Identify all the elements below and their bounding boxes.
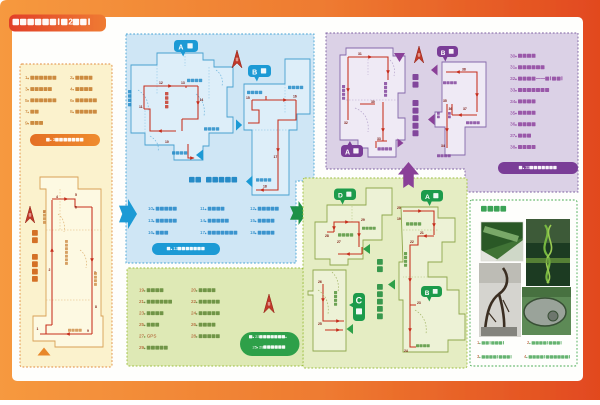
svg-text:34: 34 — [510, 99, 516, 105]
svg-text:18: 18 — [250, 230, 256, 235]
svg-text:19: 19 — [397, 217, 401, 221]
svg-text:24: 24 — [404, 349, 408, 353]
svg-text:5: 5 — [75, 193, 77, 197]
svg-text:19: 19 — [139, 288, 145, 293]
svg-text:1: 1 — [25, 75, 28, 80]
svg-text:B: B — [441, 50, 446, 57]
svg-text:4: 4 — [56, 195, 58, 199]
svg-text:11: 11 — [200, 206, 205, 211]
svg-text:B: B — [425, 290, 430, 297]
svg-text:10: 10 — [165, 140, 169, 144]
svg-text:2: 2 — [70, 75, 73, 80]
svg-text:25: 25 — [139, 322, 145, 327]
svg-text:20: 20 — [191, 288, 197, 293]
svg-text:25: 25 — [318, 322, 322, 326]
svg-text:8: 8 — [95, 305, 97, 309]
svg-text:29: 29 — [361, 218, 365, 222]
svg-text:15: 15 — [250, 218, 256, 223]
svg-text:38: 38 — [462, 68, 466, 72]
svg-text:26: 26 — [191, 322, 197, 327]
svg-text:24: 24 — [191, 311, 197, 316]
svg-text:22: 22 — [410, 240, 414, 244]
svg-text:30: 30 — [510, 53, 516, 59]
svg-text:C: C — [356, 296, 363, 306]
svg-text:7: 7 — [25, 109, 28, 114]
svg-text:14: 14 — [200, 98, 204, 102]
svg-text:4: 4 — [70, 87, 73, 92]
svg-text:28: 28 — [325, 234, 329, 238]
svg-text:8: 8 — [70, 109, 73, 114]
svg-text:17: 17 — [274, 155, 278, 159]
svg-text:35: 35 — [443, 99, 447, 103]
svg-text:16: 16 — [148, 230, 154, 235]
svg-text:26: 26 — [318, 280, 322, 284]
svg-text:14: 14 — [200, 218, 206, 223]
svg-text:31: 31 — [358, 52, 362, 56]
svg-text:9: 9 — [25, 120, 28, 125]
svg-text:6: 6 — [70, 98, 73, 103]
svg-text:12: 12 — [159, 81, 163, 85]
svg-text:27: 27 — [337, 240, 341, 244]
svg-text:GPS: GPS — [147, 334, 157, 339]
svg-text:34: 34 — [441, 144, 445, 148]
svg-text:11: 11 — [139, 105, 143, 109]
svg-text:20: 20 — [397, 206, 401, 210]
svg-text:2: 2 — [49, 268, 51, 272]
svg-text:36: 36 — [510, 122, 516, 128]
svg-text:32: 32 — [344, 121, 348, 125]
svg-text:37: 37 — [510, 133, 516, 139]
svg-text:22: 22 — [191, 299, 197, 304]
svg-text:33: 33 — [377, 137, 381, 141]
svg-text:17: 17 — [200, 230, 206, 235]
svg-text:2: 2 — [68, 17, 73, 26]
svg-text:D: D — [338, 193, 343, 200]
svg-text:B: B — [252, 70, 257, 77]
svg-text:31: 31 — [510, 65, 516, 71]
svg-text:35: 35 — [510, 110, 516, 116]
svg-text:38: 38 — [510, 145, 516, 151]
svg-text:16: 16 — [293, 95, 297, 99]
svg-text:30: 30 — [371, 100, 375, 104]
svg-text:21: 21 — [139, 299, 145, 304]
svg-text:15: 15 — [246, 96, 250, 100]
svg-text:33: 33 — [510, 88, 516, 94]
svg-text:36: 36 — [449, 107, 453, 111]
svg-text:10: 10 — [148, 206, 154, 211]
svg-text:12: 12 — [250, 206, 256, 211]
svg-text:6: 6 — [75, 206, 77, 210]
svg-text:23: 23 — [139, 311, 145, 316]
svg-text:18: 18 — [263, 185, 267, 189]
svg-text:1: 1 — [37, 327, 39, 331]
svg-text:A: A — [345, 150, 350, 157]
svg-text:13: 13 — [148, 218, 154, 223]
svg-text:29: 29 — [139, 345, 145, 350]
svg-text:21: 21 — [420, 231, 424, 235]
svg-text:37: 37 — [463, 107, 467, 111]
svg-text:23: 23 — [417, 301, 421, 305]
svg-text:32: 32 — [510, 76, 516, 82]
svg-text:28: 28 — [191, 334, 197, 339]
svg-text:5: 5 — [25, 98, 28, 103]
svg-text:13: 13 — [181, 81, 185, 85]
svg-text:27: 27 — [139, 334, 145, 339]
svg-text:A: A — [425, 194, 430, 201]
svg-text:9: 9 — [87, 329, 89, 333]
svg-text:A: A — [178, 45, 183, 52]
svg-text:25: 25 — [253, 344, 258, 349]
svg-text:3: 3 — [25, 87, 28, 92]
